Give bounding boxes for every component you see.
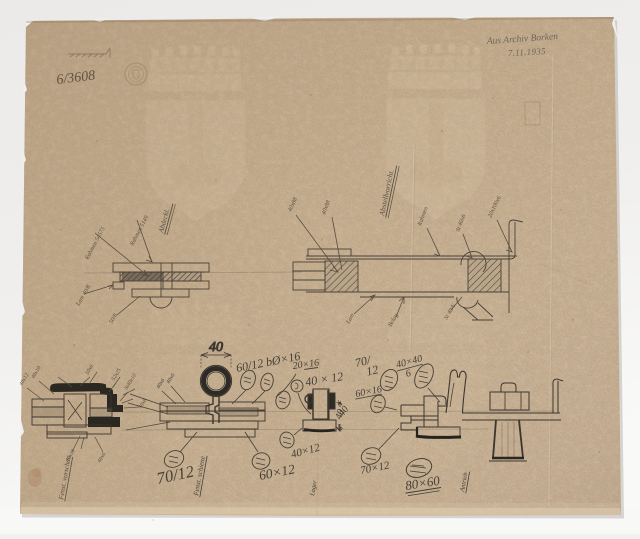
svg-text:40: 40 — [209, 340, 223, 355]
svg-text:7.11.1935: 7.11.1935 — [508, 46, 547, 58]
svg-text:+: + — [335, 398, 342, 409]
